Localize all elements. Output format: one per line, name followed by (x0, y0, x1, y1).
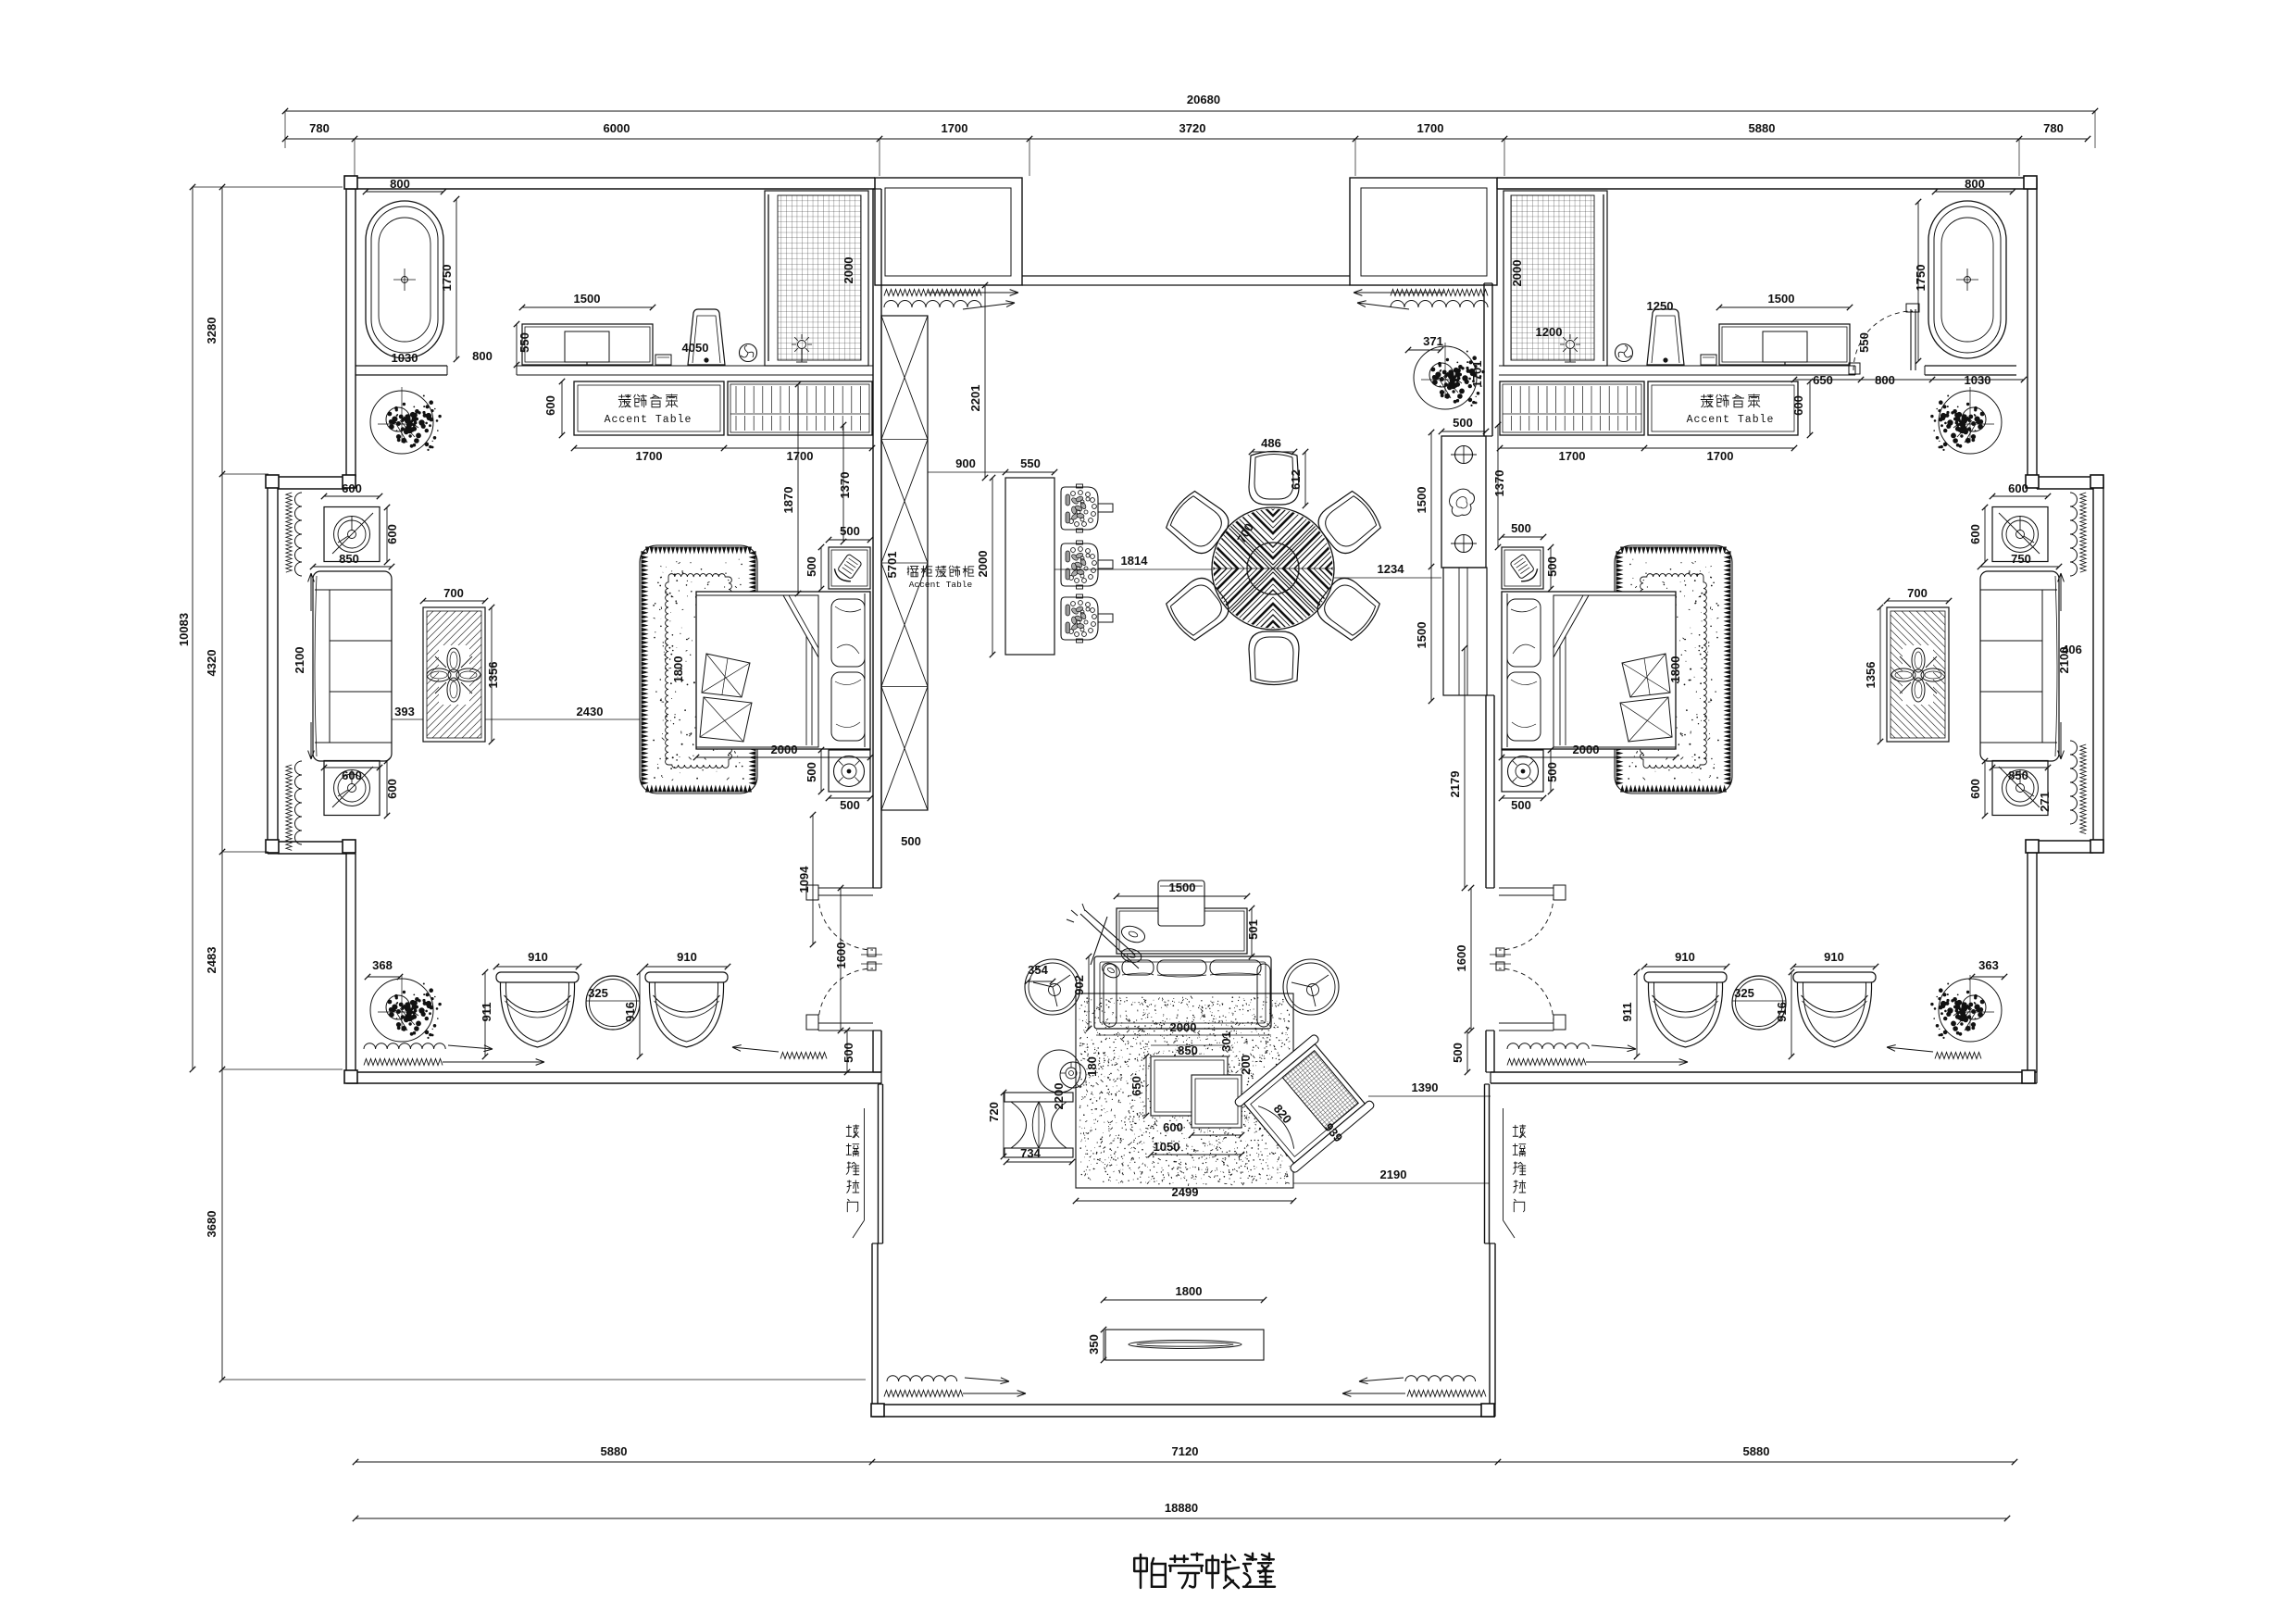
svg-text:850: 850 (1178, 1043, 1198, 1057)
svg-text:2430: 2430 (577, 705, 604, 718)
svg-text:2499: 2499 (1172, 1185, 1199, 1199)
svg-text:325: 325 (588, 986, 608, 1000)
svg-text:10083: 10083 (177, 613, 191, 646)
svg-text:916: 916 (1775, 1002, 1789, 1022)
svg-text:1030: 1030 (1965, 373, 1991, 387)
svg-text:2000: 2000 (976, 551, 990, 578)
svg-text:600: 600 (2008, 481, 2028, 495)
svg-text:720: 720 (987, 1102, 1001, 1122)
svg-text:1356: 1356 (486, 662, 500, 689)
svg-text:1500: 1500 (574, 292, 601, 306)
svg-text:1800: 1800 (1668, 656, 1682, 683)
svg-text:500: 500 (1511, 521, 1531, 535)
svg-text:600: 600 (1968, 779, 1982, 799)
svg-text:911: 911 (1620, 1003, 1634, 1022)
svg-text:1500: 1500 (1169, 881, 1196, 894)
svg-text:780: 780 (2043, 121, 2064, 135)
svg-text:180: 180 (1085, 1056, 1099, 1077)
svg-text:325: 325 (1734, 986, 1754, 1000)
svg-text:4050: 4050 (682, 341, 709, 355)
svg-text:1500: 1500 (1415, 487, 1429, 514)
svg-text:1600: 1600 (834, 943, 848, 969)
svg-text:500: 500 (842, 1043, 855, 1063)
svg-text:1356: 1356 (1864, 662, 1878, 689)
svg-text:3680: 3680 (205, 1211, 218, 1238)
svg-text:910: 910 (1675, 950, 1695, 964)
svg-text:1700: 1700 (1417, 121, 1444, 135)
svg-text:1370: 1370 (838, 472, 852, 499)
svg-text:800: 800 (1875, 373, 1895, 387)
svg-text:650: 650 (1129, 1076, 1143, 1096)
svg-text:200: 200 (1239, 1055, 1253, 1075)
svg-text:600: 600 (543, 395, 557, 416)
svg-text:600: 600 (1968, 524, 1982, 544)
svg-text:500: 500 (1545, 556, 1559, 577)
svg-text:486: 486 (1261, 436, 1281, 450)
svg-text:1700: 1700 (942, 121, 968, 135)
svg-text:1030: 1030 (392, 351, 418, 365)
svg-text:1234: 1234 (1378, 562, 1405, 576)
svg-text:1500: 1500 (1415, 622, 1429, 649)
svg-text:1600: 1600 (1454, 945, 1468, 972)
svg-text:850: 850 (339, 552, 359, 566)
svg-text:910: 910 (528, 950, 548, 964)
svg-text:600: 600 (342, 481, 362, 495)
svg-text:20680: 20680 (1187, 93, 1220, 106)
svg-text:1700: 1700 (787, 449, 814, 463)
svg-text:3720: 3720 (1179, 121, 1206, 135)
svg-text:Accent Table: Accent Table (1687, 414, 1775, 426)
svg-text:500: 500 (1511, 798, 1531, 812)
svg-text:2100: 2100 (293, 647, 306, 674)
svg-text:500: 500 (1545, 762, 1559, 782)
svg-text:5880: 5880 (1749, 121, 1776, 135)
svg-text:800: 800 (472, 349, 493, 363)
svg-text:2000: 2000 (1510, 260, 1524, 287)
svg-text:902: 902 (1072, 975, 1086, 995)
svg-text:2000: 2000 (1170, 1020, 1197, 1034)
svg-text:550: 550 (518, 332, 531, 353)
svg-text:612: 612 (1289, 469, 1303, 490)
svg-text:800: 800 (390, 177, 410, 191)
svg-text:5701: 5701 (885, 552, 899, 579)
svg-text:850: 850 (2008, 768, 2028, 782)
svg-text:910: 910 (1824, 950, 1844, 964)
svg-text:2201: 2201 (968, 385, 982, 412)
svg-text:600: 600 (385, 779, 399, 799)
svg-text:2200: 2200 (1052, 1083, 1066, 1110)
svg-text:1700: 1700 (1559, 449, 1586, 463)
svg-text:800: 800 (1965, 177, 1985, 191)
svg-text:734: 734 (1020, 1146, 1041, 1160)
svg-text:5880: 5880 (1743, 1444, 1770, 1458)
svg-text:2190: 2190 (1380, 1168, 1407, 1181)
svg-text:500: 500 (901, 834, 921, 848)
svg-text:550: 550 (1857, 332, 1871, 353)
svg-text:600: 600 (385, 524, 399, 544)
svg-text:363: 363 (1978, 958, 1999, 972)
svg-text:2483: 2483 (205, 947, 218, 974)
svg-text:500: 500 (840, 798, 860, 812)
svg-text:1750: 1750 (1914, 265, 1928, 292)
svg-text:7120: 7120 (1172, 1444, 1199, 1458)
svg-text:500: 500 (1453, 416, 1473, 430)
svg-text:2000: 2000 (1573, 743, 1600, 756)
svg-text:911: 911 (480, 1003, 493, 1022)
svg-text:1701: 1701 (1470, 361, 1484, 388)
svg-text:1500: 1500 (1768, 292, 1795, 306)
svg-text:301: 301 (1219, 1031, 1233, 1052)
svg-text:368: 368 (372, 958, 393, 972)
svg-text:354: 354 (1028, 963, 1048, 977)
svg-text:600: 600 (1163, 1120, 1183, 1134)
svg-text:1750: 1750 (440, 265, 454, 292)
svg-text:500: 500 (840, 524, 860, 538)
svg-text:600: 600 (342, 768, 362, 782)
svg-text:350: 350 (1087, 1334, 1101, 1355)
svg-text:1700: 1700 (1707, 449, 1734, 463)
svg-text:1094: 1094 (797, 866, 811, 893)
svg-text:916: 916 (623, 1002, 637, 1022)
svg-text:750: 750 (2011, 552, 2031, 566)
svg-text:1700: 1700 (636, 449, 663, 463)
svg-text:1870: 1870 (781, 487, 795, 514)
svg-text:2000: 2000 (771, 743, 798, 756)
svg-text:Accent Table: Accent Table (605, 414, 693, 426)
svg-text:650: 650 (1813, 373, 1833, 387)
svg-text:2000: 2000 (842, 257, 855, 284)
svg-text:1390: 1390 (1412, 1081, 1439, 1094)
svg-text:1200: 1200 (1536, 325, 1563, 339)
svg-text:700: 700 (443, 586, 464, 600)
svg-text:3280: 3280 (205, 318, 218, 344)
svg-text:780: 780 (309, 121, 330, 135)
svg-text:1250: 1250 (1647, 299, 1674, 313)
svg-text:4320: 4320 (205, 650, 218, 677)
svg-text:1370: 1370 (1492, 470, 1506, 497)
svg-text:406: 406 (2062, 643, 2082, 656)
svg-text:18880: 18880 (1165, 1501, 1198, 1515)
svg-text:Accent Table: Accent Table (909, 580, 973, 590)
svg-text:393: 393 (394, 705, 415, 718)
svg-text:1800: 1800 (1176, 1284, 1203, 1298)
svg-text:2179: 2179 (1448, 771, 1462, 798)
svg-text:910: 910 (677, 950, 697, 964)
svg-text:700: 700 (1907, 586, 1928, 600)
svg-text:5880: 5880 (601, 1444, 628, 1458)
svg-text:900: 900 (955, 456, 976, 470)
svg-text:500: 500 (1451, 1043, 1465, 1063)
svg-text:550: 550 (1020, 456, 1041, 470)
svg-text:500: 500 (805, 556, 818, 577)
svg-text:1814: 1814 (1121, 554, 1149, 568)
svg-text:501: 501 (1246, 919, 1260, 940)
svg-text:1800: 1800 (671, 656, 685, 683)
svg-text:1050: 1050 (1154, 1140, 1180, 1154)
svg-text:271: 271 (2038, 792, 2052, 812)
svg-text:500: 500 (805, 762, 818, 782)
svg-text:6000: 6000 (604, 121, 630, 135)
svg-text:600: 600 (1791, 395, 1805, 416)
svg-text:371: 371 (1423, 334, 1443, 348)
